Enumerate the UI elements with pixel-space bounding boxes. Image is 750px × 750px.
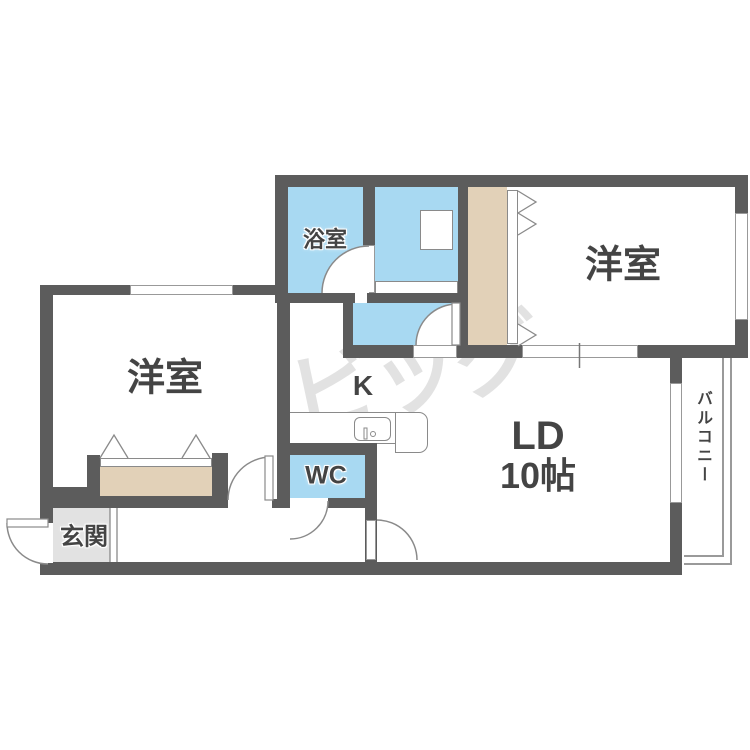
kitchen-faucet [364,428,376,439]
living-label: LD [511,416,564,456]
room-label-kitchen: K [353,370,373,402]
folding-door-chevrons-top-closet [518,191,536,346]
room-label-bath: 浴室 [303,222,347,254]
room-label-wc: WC [305,462,347,491]
wc-door-arc [290,501,328,539]
door-swing-overlay [0,0,750,750]
room-label-bedroom-top: 洋室 [585,234,661,289]
ld-door-arc [377,520,417,560]
floorplan: ビッグ [0,0,750,750]
room-label-bedroom-left: 洋室 [127,347,203,402]
washroom-door-arc [416,303,460,345]
entrance-step-lines [110,508,117,562]
living-area: 10帖 [500,456,576,496]
bedroom-left-door-leaf [265,456,273,500]
room-label-living: LD 10帖 [500,416,576,496]
washroom-door-leaf [452,303,460,345]
entrance-door-arc [7,519,48,564]
room-label-balcony: バルコニー [690,390,714,535]
folding-door-chevrons-left-closet [100,435,210,458]
entrance-door-leaf [7,519,48,527]
room-label-entrance: 玄関 [60,517,108,552]
bedroom-left-door-arc [228,456,273,500]
